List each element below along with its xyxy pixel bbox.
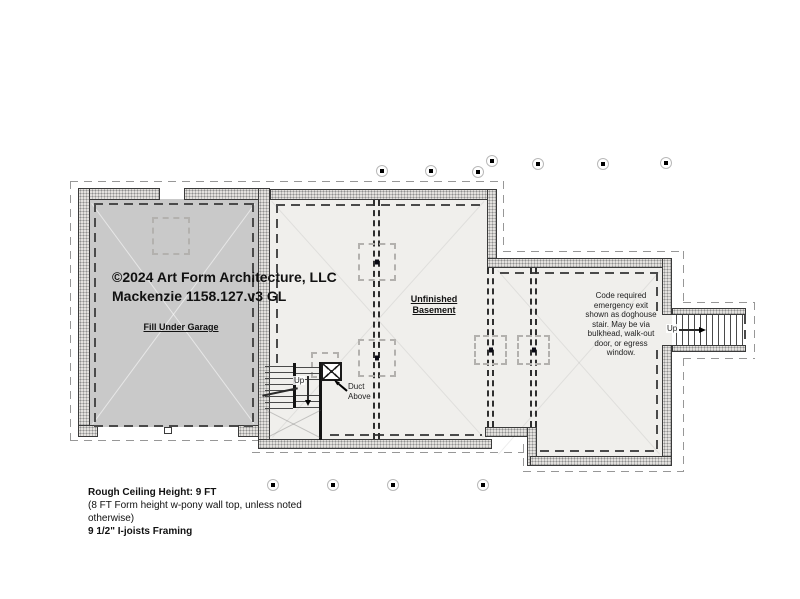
duct-above-label-line2: Above	[347, 392, 372, 401]
project-id-line: Mackenzie 1158.127.v3 GL	[112, 287, 286, 305]
inner-dashed-line	[500, 272, 658, 274]
inner-dashed-line	[276, 204, 485, 206]
wall-segment-garage-top-left	[78, 188, 160, 200]
footing-dashed-line	[503, 181, 504, 252]
column-grid-marker	[477, 479, 489, 491]
general-notes: Rough Ceiling Height: 9 FT (8 FT Form he…	[88, 486, 302, 538]
column-grid-marker	[486, 155, 498, 167]
column-dot	[375, 260, 379, 265]
egress-note-line: Code required	[578, 291, 664, 301]
footing-dashed-line	[683, 302, 754, 303]
beam-line	[373, 200, 380, 439]
inner-dashed-line	[252, 203, 254, 425]
wall-segment-right-lower	[662, 345, 672, 466]
inner-dashed-line	[94, 203, 96, 425]
wall-segment-stair-top	[672, 308, 746, 315]
footing-dashed-line	[523, 471, 684, 472]
stair-stringer	[293, 363, 296, 408]
inner-dashed-line	[94, 203, 254, 205]
column-grid-marker	[425, 165, 437, 177]
basement-room-label-line1: Unfinished	[404, 294, 464, 304]
exterior-stair-up-label: Up	[666, 324, 678, 333]
column-grid-marker	[660, 157, 672, 169]
column-pad	[517, 335, 550, 365]
footing-dashed-line	[523, 444, 524, 472]
egress-note-line: emergency exit	[578, 301, 664, 311]
column-pad	[358, 339, 396, 377]
column-dot	[489, 348, 493, 353]
wall-segment-step-right	[487, 189, 497, 268]
duct-box	[321, 362, 342, 381]
column-grid-marker	[327, 479, 339, 491]
egress-note-line: shown as doghouse	[578, 310, 664, 320]
column-dot	[375, 356, 379, 361]
column-grid-marker	[387, 479, 399, 491]
copyright-line: ©2024 Art Form Architecture, LLC	[112, 268, 337, 286]
egress-note: Code required emergency exit shown as do…	[578, 291, 664, 358]
inner-dashed-line	[656, 350, 658, 452]
column-grid-marker	[376, 165, 388, 177]
floor-plan-canvas: Up Duct Above Up ©2024 Art Form Architec…	[0, 0, 800, 599]
column-pad	[358, 243, 396, 281]
inner-dashed-line	[94, 425, 254, 427]
egress-note-line: door, or egress	[578, 339, 664, 349]
wall-segment-right-bottom	[530, 456, 672, 466]
wall-segment-right-top	[487, 258, 672, 268]
egress-note-line: bulkhead, walk-out	[578, 329, 664, 339]
footing-dashed-line	[683, 251, 684, 303]
garage-room-label: Fill Under Garage	[136, 322, 226, 332]
note-ceiling-height: Rough Ceiling Height: 9 FT	[88, 486, 302, 499]
inner-dashed-line	[540, 450, 656, 452]
column-dot	[532, 348, 536, 353]
footing-dashed-line	[70, 181, 503, 182]
egress-note-line: stair. May be via	[578, 320, 664, 330]
column-grid-marker	[597, 158, 609, 170]
footing-dashed-line	[70, 181, 71, 441]
footing-dashed-line	[754, 302, 755, 359]
column-pad	[474, 335, 507, 365]
note-form-height-line1: (8 FT Form height w-pony wall top, unles…	[88, 499, 302, 512]
note-joists: 9 1/2" I-joists Framing	[88, 525, 302, 538]
column-grid-marker	[472, 166, 484, 178]
basement-room-label-line2: Basement	[404, 305, 464, 315]
column-pad	[152, 217, 190, 255]
stair-open-end-dashed	[744, 315, 746, 345]
footing-dashed-line	[70, 440, 277, 441]
footing-dashed-line	[252, 452, 524, 453]
footing-dashed-line	[503, 251, 684, 252]
right-arrow-shaft	[679, 329, 701, 331]
wall-segment-garage-left	[78, 188, 90, 437]
egress-note-line: window.	[578, 348, 664, 358]
inner-dashed-line	[330, 434, 482, 436]
right-arrow-icon	[699, 327, 706, 333]
down-arrow-shaft	[307, 376, 309, 401]
column-grid-marker	[532, 158, 544, 170]
note-form-height-line2: otherwise)	[88, 512, 302, 525]
garage-door-pier	[164, 427, 172, 434]
footing-dashed-line	[683, 358, 754, 359]
interior-stair-up-label: Up	[293, 376, 305, 385]
wall-segment-stair-bottom	[672, 345, 746, 352]
duct-above-label-line1: Duct	[347, 382, 365, 391]
footing-dashed-line	[683, 358, 684, 472]
down-arrow-icon	[305, 400, 311, 406]
wall-segment-basement-top	[270, 189, 497, 200]
stair-tread-left-flight	[265, 365, 293, 409]
wall-segment-mid-bottom	[258, 439, 492, 449]
